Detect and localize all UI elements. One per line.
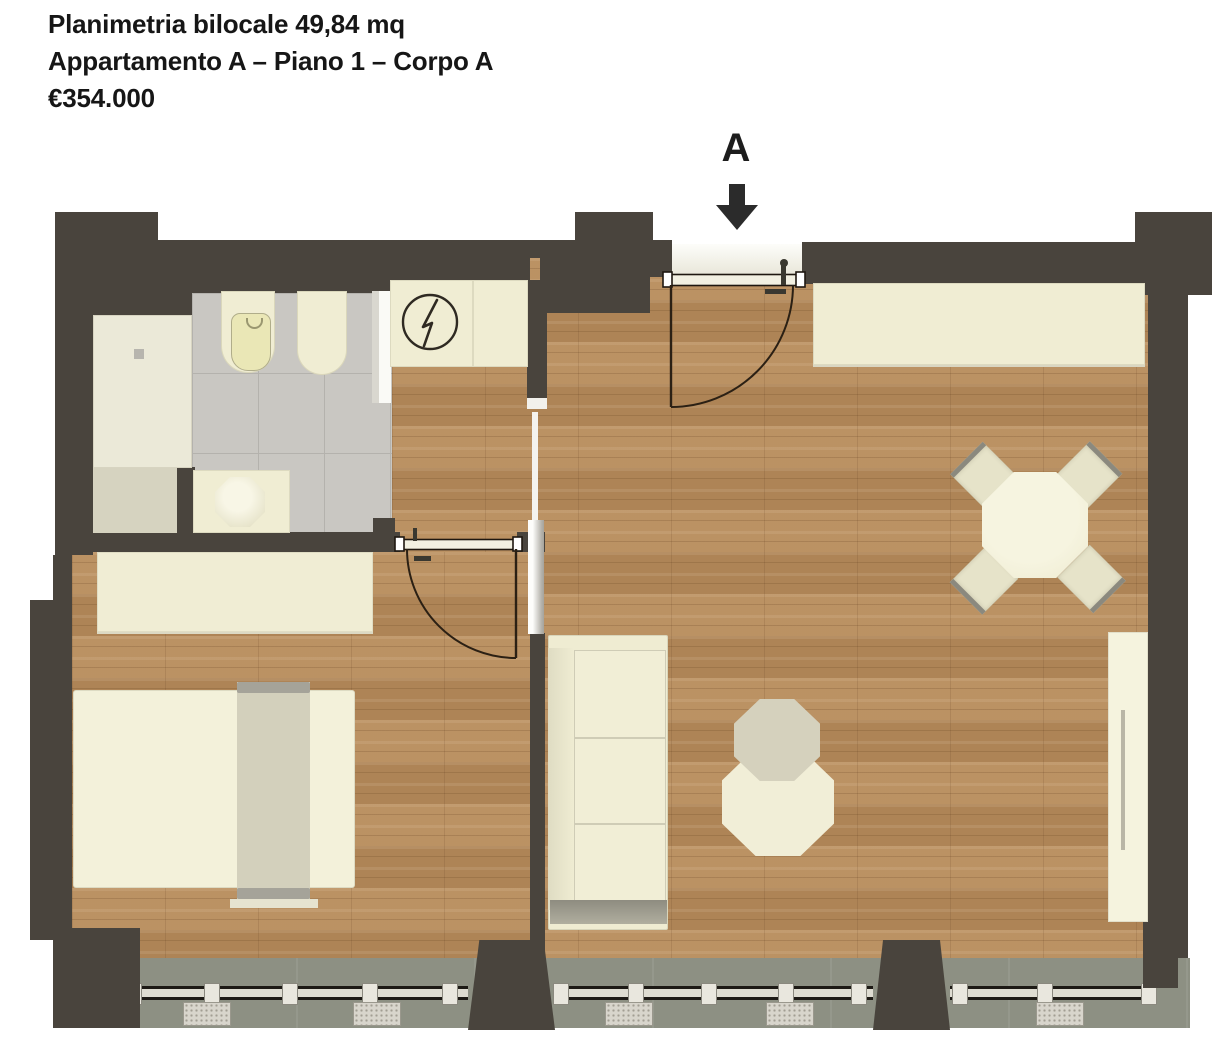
- floor-plan: Planimetria bilocale 49,84 mq Appartamen…: [0, 0, 1224, 1050]
- electrical-panel-icon: [403, 295, 457, 349]
- bedroom-door: [395, 528, 522, 658]
- door-handle-icon: [413, 528, 417, 541]
- entrance-door: [663, 259, 805, 407]
- plan-linework: [0, 0, 1224, 1050]
